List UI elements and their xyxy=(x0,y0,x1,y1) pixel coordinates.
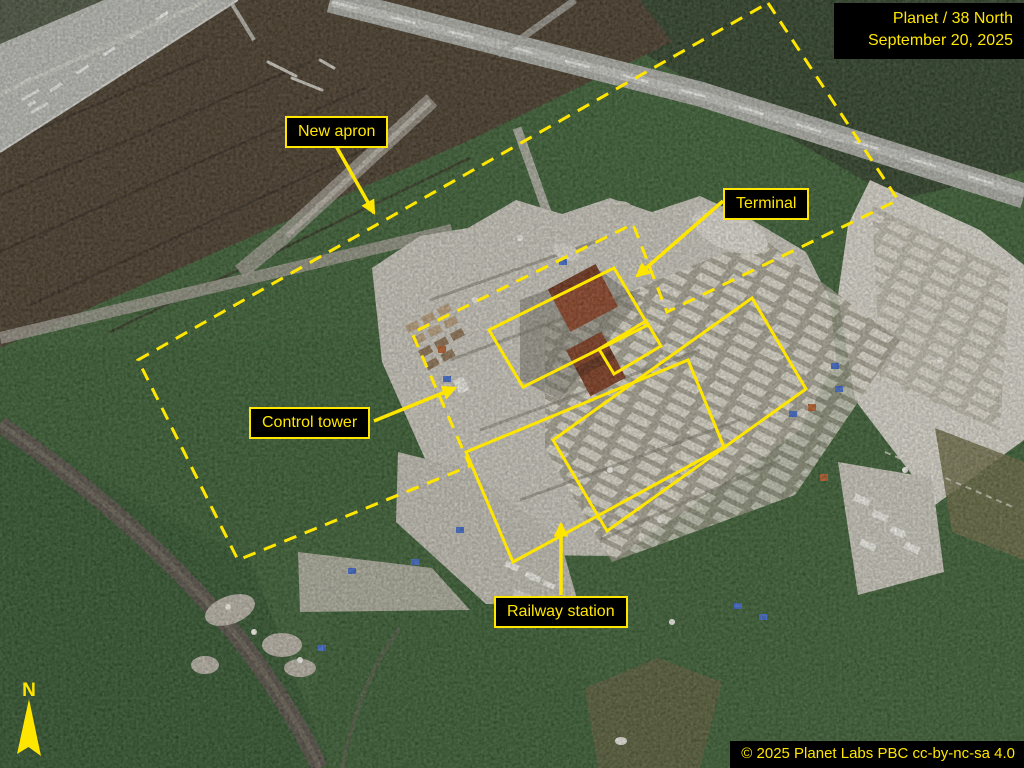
label-terminal: Terminal xyxy=(723,188,809,220)
credit-date: September 20, 2025 xyxy=(834,30,1013,52)
satellite-base: N xyxy=(0,0,1024,768)
license-footer: © 2025 Planet Labs PBC cc-by-nc-sa 4.0 xyxy=(730,741,1024,768)
north-letter: N xyxy=(22,680,36,701)
grain-light xyxy=(0,0,1024,768)
credit-source: Planet / 38 North xyxy=(834,8,1013,30)
label-new-apron: New apron xyxy=(285,116,388,148)
label-railway-station: Railway station xyxy=(494,596,628,628)
label-control-tower: Control tower xyxy=(249,407,370,439)
annotated-satellite-image: N New apron Terminal Control tower Railw… xyxy=(0,0,1024,768)
image-credit-header: Planet / 38 North September 20, 2025 xyxy=(834,3,1024,59)
